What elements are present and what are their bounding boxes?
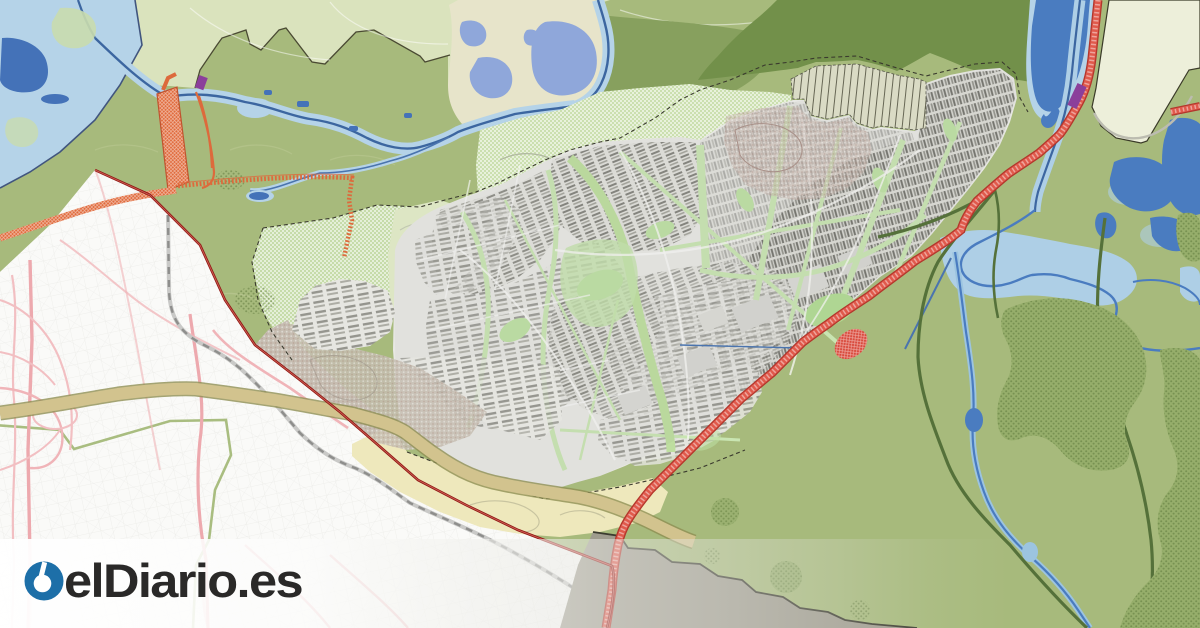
- svg-text:elDiario.es: elDiario.es: [64, 554, 302, 607]
